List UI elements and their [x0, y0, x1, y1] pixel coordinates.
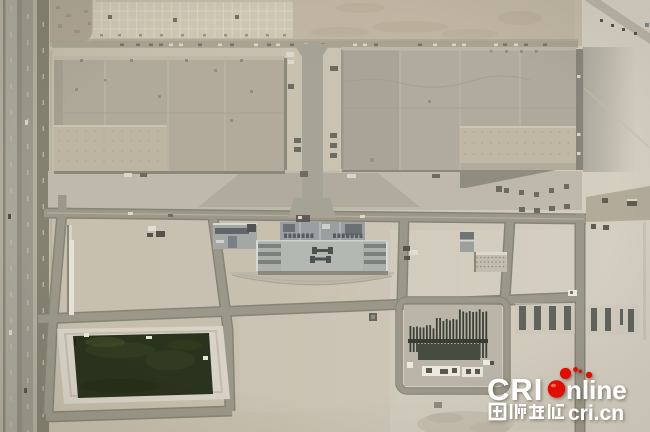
svg-text:CRI: CRI	[487, 372, 543, 407]
svg-text:cri.cn: cri.cn	[568, 402, 624, 425]
svg-text:nline: nline	[566, 375, 627, 405]
